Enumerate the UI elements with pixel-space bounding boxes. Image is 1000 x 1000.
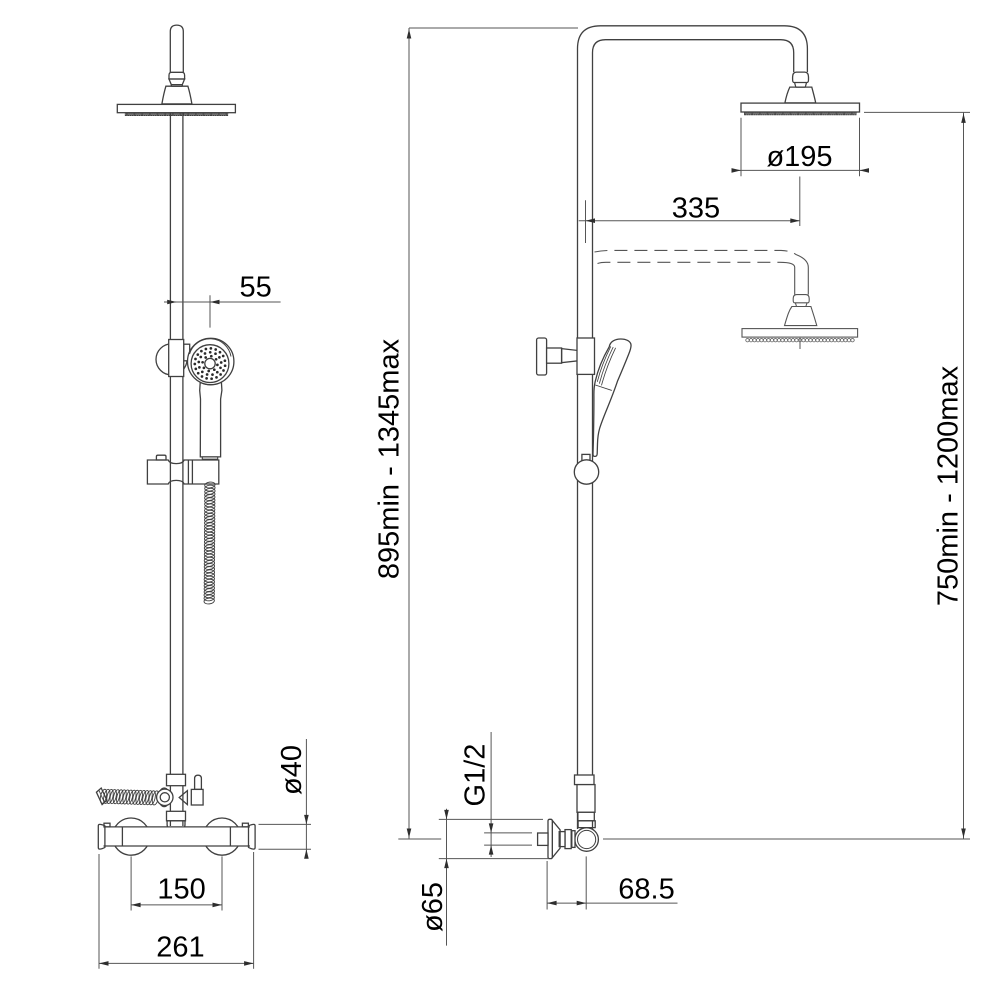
svg-text:335: 335	[672, 192, 720, 224]
svg-text:150: 150	[157, 873, 205, 905]
svg-text:261: 261	[156, 931, 204, 963]
svg-text:750min - 1200max: 750min - 1200max	[933, 365, 965, 606]
svg-text:G1/2: G1/2	[460, 744, 492, 807]
svg-text:ø40: ø40	[276, 745, 308, 795]
svg-text:ø65: ø65	[417, 882, 449, 932]
svg-text:55: 55	[239, 272, 271, 304]
svg-text:895min - 1345max: 895min - 1345max	[374, 338, 406, 579]
svg-text:ø195: ø195	[766, 141, 832, 173]
svg-text:68.5: 68.5	[618, 873, 674, 905]
